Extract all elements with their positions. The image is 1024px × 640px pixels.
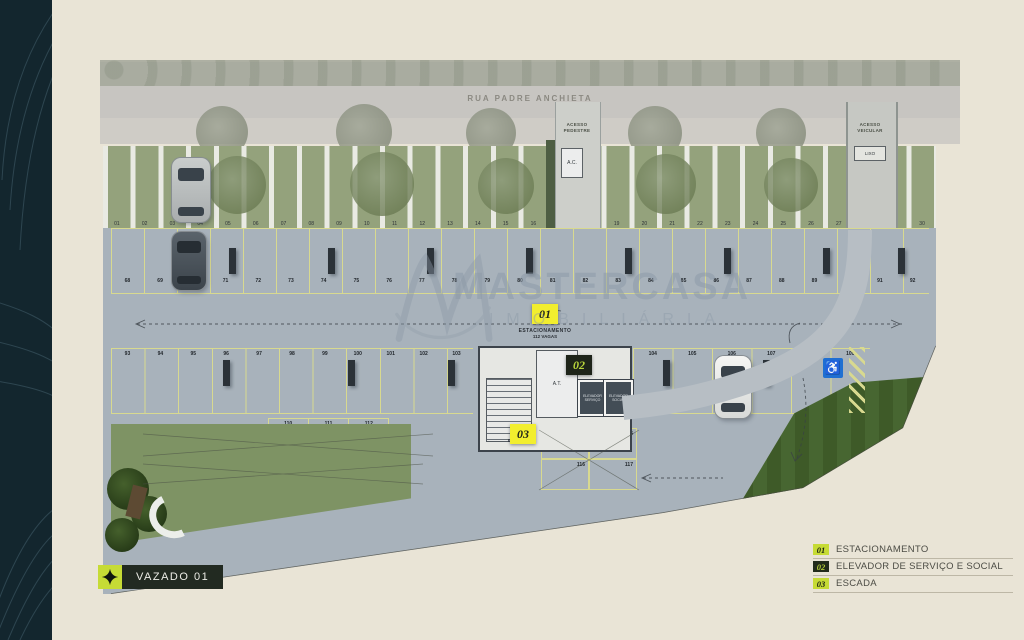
- parking-space-number: 108: [791, 351, 831, 357]
- pillar: [823, 248, 830, 274]
- parking-space-number: 76: [373, 278, 406, 284]
- parking-space-number: 11: [381, 221, 409, 227]
- parking-space-number: 99: [308, 351, 341, 357]
- parking-space-number: 85: [667, 278, 700, 284]
- pillar: [526, 248, 533, 274]
- parking-space-number: 26: [797, 221, 825, 227]
- curve-pattern-icon: [0, 0, 52, 640]
- marker-01-badge: 01: [532, 304, 558, 324]
- legend-item-estacionamento: 01 ESTACIONAMENTO: [813, 542, 1013, 559]
- parking-space-number: 117: [589, 459, 637, 490]
- pillar: [763, 360, 770, 386]
- parking-space-number: 15: [492, 221, 520, 227]
- parking-space-number: 24: [742, 221, 770, 227]
- parking-space-number: 12: [408, 221, 436, 227]
- parking-space-number: 77: [405, 278, 438, 284]
- page: RUA PADRE ANCHIETA 010203040506070809101…: [0, 0, 1024, 640]
- car-windshield: [177, 241, 200, 253]
- parking-space-number: 16: [519, 221, 547, 227]
- tree-icon: [764, 158, 818, 212]
- parking-space-number: 22: [686, 221, 714, 227]
- parking-space-number: 95: [177, 351, 210, 357]
- parking-space-number: 14: [464, 221, 492, 227]
- parking-space-number: 93: [111, 351, 144, 357]
- parking-space-number: 104: [633, 351, 673, 357]
- car-top-view-white: [715, 356, 751, 418]
- parking-space-number: 72: [242, 278, 275, 284]
- parking-space-number: 97: [243, 351, 276, 357]
- car-windshield: [178, 168, 204, 181]
- legend-badge-01: 01: [813, 544, 829, 555]
- parking-space-number: 01: [103, 221, 131, 227]
- car-rear-window: [177, 276, 200, 284]
- parking-row-top-numbers: 0102030405060708091011121314151617181920…: [103, 221, 936, 227]
- parking-space-number: 75: [340, 278, 373, 284]
- parking-space-number: 13: [436, 221, 464, 227]
- pillar: [898, 248, 905, 274]
- pillar: [229, 248, 236, 274]
- vehicle-ramp: [846, 102, 898, 228]
- parking-space-number: 71: [209, 278, 242, 284]
- car-rear-window: [178, 207, 204, 216]
- bush-icon: [105, 518, 139, 552]
- hedge-strip: [546, 140, 555, 228]
- parking-space-number: 102: [407, 351, 440, 357]
- marker-03-badge: 03: [510, 424, 536, 444]
- site-plan: RUA PADRE ANCHIETA 010203040506070809101…: [100, 60, 962, 542]
- parking-space-number: 19: [603, 221, 631, 227]
- tree-icon: [208, 156, 266, 214]
- parking-space-number: 107: [752, 351, 792, 357]
- parking-space-number: 09: [325, 221, 353, 227]
- legend-label-02: ELEVADOR DE SERVIÇO E SOCIAL: [836, 561, 1003, 572]
- parking-space-number: 88: [765, 278, 798, 284]
- legend-label-01: ESTACIONAMENTO: [836, 544, 929, 555]
- elevator-social-box: ELEVADOR SOCIAL: [604, 380, 633, 416]
- parking-space-number: 20: [631, 221, 659, 227]
- legend-badge-03: 03: [813, 578, 829, 589]
- parking-space-number: 116: [541, 459, 589, 490]
- parking-space-number: 87: [733, 278, 766, 284]
- parking-space-number: 103: [440, 351, 473, 357]
- parking-space-number: 101: [374, 351, 407, 357]
- floor-label-text: VAZADO 01: [122, 565, 223, 589]
- pillar: [663, 360, 670, 386]
- parking-space-number: 90: [831, 278, 864, 284]
- street-tree-canopy: [100, 60, 960, 86]
- pillar: [348, 360, 355, 386]
- legend-label-03: ESCADA: [836, 578, 877, 589]
- marker-01-caption: ESTACIONAMENTO 112 VAGAS: [495, 328, 595, 339]
- parking-space-number: 92: [896, 278, 929, 284]
- pedestrian-access-label: ACESSO PEDESTRE: [547, 122, 607, 133]
- parking-space-number: 02: [131, 221, 159, 227]
- parking-space-number: 86: [700, 278, 733, 284]
- parking-row-a-numbers: 6869707172737475767778798081828384858687…: [111, 278, 929, 284]
- stall-row-b-left-lines: [111, 348, 473, 414]
- vehicle-access-label: ACESSO VEICULAR: [840, 122, 900, 133]
- parking-space-number: 79: [471, 278, 504, 284]
- parking-space-number: 25: [769, 221, 797, 227]
- parking-space-number: 96: [210, 351, 243, 357]
- parking-space-number: 89: [798, 278, 831, 284]
- trash-box: LIXO: [854, 146, 886, 161]
- legend: 01 ESTACIONAMENTO 02 ELEVADOR DE SERVIÇO…: [813, 542, 1013, 593]
- core-block: A.T. ELEVADOR SERVIÇO ELEVADOR SOCIAL ES…: [478, 346, 632, 452]
- legend-badge-02: 02: [813, 561, 829, 572]
- parking-space-number: 105: [673, 351, 713, 357]
- pillar: [625, 248, 632, 274]
- parking-space-number: 84: [635, 278, 668, 284]
- hatched-no-parking-strip: [849, 347, 865, 413]
- elevator-service-box: ELEVADOR SERVIÇO: [578, 380, 607, 416]
- floor-label: VAZADO 01: [98, 565, 223, 589]
- pillar: [724, 248, 731, 274]
- parking-space-number: 05: [214, 221, 242, 227]
- parking-space-number: 81: [536, 278, 569, 284]
- parking-space-number: 78: [438, 278, 471, 284]
- parking-space-number: 08: [297, 221, 325, 227]
- parking-space-number: 23: [714, 221, 742, 227]
- pillar: [223, 360, 230, 386]
- parking-space-number: 30: [908, 221, 936, 227]
- car-top-view-gray: [172, 158, 210, 222]
- marker-02-badge: 02: [566, 355, 592, 375]
- parking-space-number: 83: [602, 278, 635, 284]
- parking-space-number: 94: [144, 351, 177, 357]
- sparkle-icon: [98, 565, 122, 589]
- street-name-label: RUA PADRE ANCHIETA: [100, 94, 960, 103]
- parking-space-number: 21: [658, 221, 686, 227]
- tree-icon: [350, 152, 414, 216]
- parking-space-number: 91: [864, 278, 897, 284]
- tree-icon: [478, 158, 534, 214]
- pillar: [328, 248, 335, 274]
- parking-space-number: 74: [307, 278, 340, 284]
- pillar: [427, 248, 434, 274]
- parking-space-number: 98: [276, 351, 309, 357]
- parking-space-number: 07: [270, 221, 298, 227]
- parking-space-number: 73: [275, 278, 308, 284]
- parking-space-number: 68: [111, 278, 144, 284]
- parking-row-b-left-numbers: 93949596979899100101102103: [111, 351, 473, 357]
- legend-item-escada: 03 ESCADA: [813, 576, 1013, 593]
- decorative-left-band: [0, 0, 52, 640]
- parking-row-b-right-numbers: 104105106107108109: [633, 351, 870, 357]
- parking-space-number: 10: [353, 221, 381, 227]
- car-rear-window: [721, 403, 746, 412]
- car-windshield: [721, 366, 746, 378]
- parking-space-number: 06: [242, 221, 270, 227]
- parking-space-number: 100: [341, 351, 374, 357]
- legend-item-elevador: 02 ELEVADOR DE SERVIÇO E SOCIAL: [813, 559, 1013, 576]
- accessible-parking-icon: ♿: [823, 358, 843, 378]
- car-top-view-dark: [172, 232, 206, 290]
- parking-space-number: 80: [504, 278, 537, 284]
- marker-01-caption-sub: 112 VAGAS: [495, 334, 595, 339]
- pillar: [448, 360, 455, 386]
- tree-icon: [636, 154, 696, 214]
- ac-box: A.C.: [561, 148, 583, 178]
- parking-space-number: 82: [569, 278, 602, 284]
- parking-lot: 6869707172737475767778798081828384858687…: [103, 228, 936, 594]
